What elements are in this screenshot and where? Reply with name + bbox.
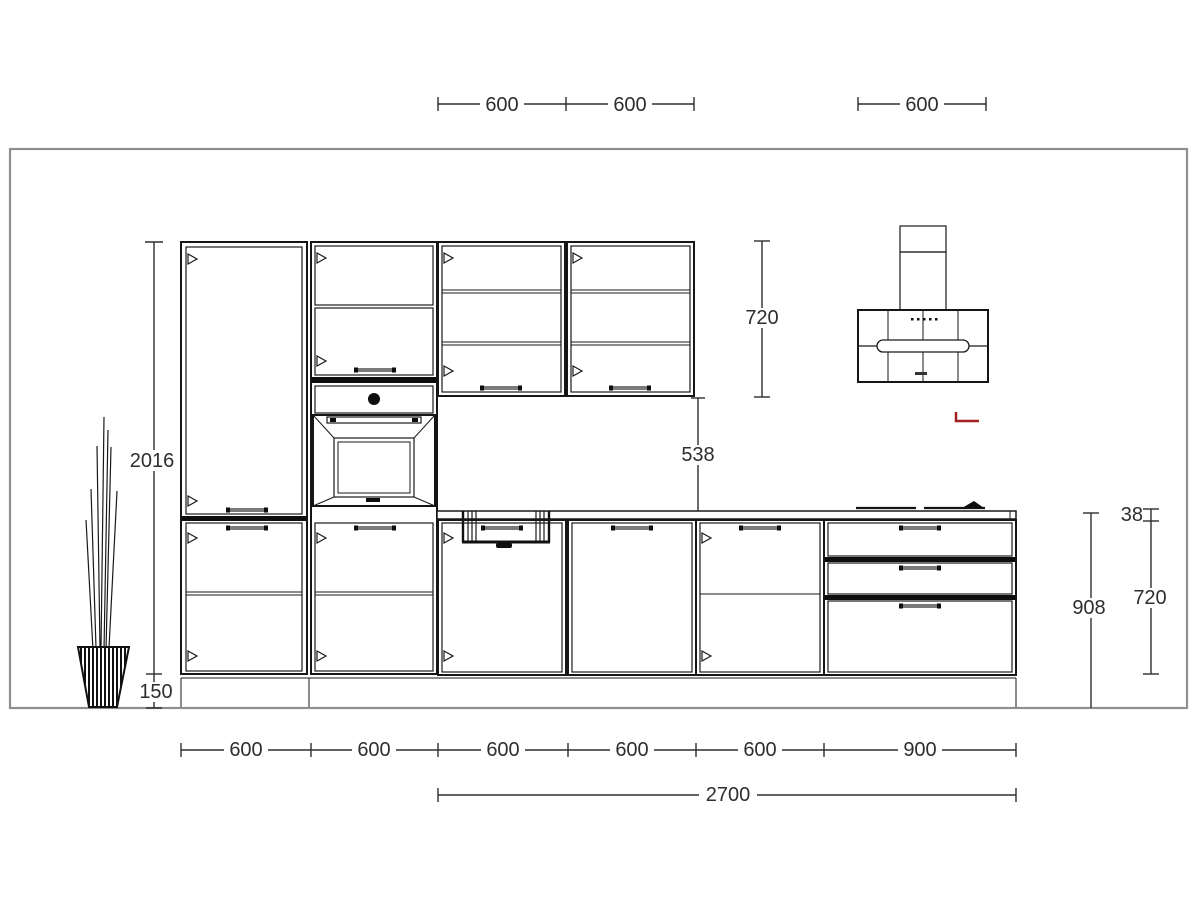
built-in-oven [313,386,435,506]
door-handle [480,386,522,391]
hinge-icon [188,533,197,543]
dim-label: 600 [357,739,390,761]
dim-label: 600 [229,739,262,761]
wall-cabinet-left [438,242,565,396]
dim-top-hood: 600 [858,94,986,116]
door-handle [739,526,781,531]
sink-drain [496,543,512,548]
dim-label: 150 [139,681,172,703]
hinge-icon [444,253,453,263]
dim-label: 720 [1133,587,1166,609]
plinth [181,678,1016,707]
door-handle [611,526,653,531]
dim-top-wall-cabinets: 600 600 [438,94,694,116]
dim-label: 600 [613,94,646,116]
range-hood [858,226,988,382]
kitchen-elevation-drawing: 600 600 600 2016 150 720 538 [0,0,1200,900]
dim-total-width: 2700 [438,784,1016,806]
door-handle [354,368,396,373]
hinge-icon [317,533,326,543]
hinge-icon [317,651,326,661]
hinge-icon [317,356,326,366]
plant-vase [78,647,129,707]
dim-label: 600 [743,739,776,761]
dim-label: 600 [486,739,519,761]
cooktop-control [962,501,984,508]
hinge-icon [444,533,453,543]
dim-label: 900 [903,739,936,761]
hinge-icon [702,651,711,661]
oven-housing-cabinet [311,242,437,674]
dim-label: 2700 [706,784,751,806]
dim-label: 538 [681,444,714,466]
dim-splashback: 538 [674,398,722,511]
dim-label: 2016 [130,450,175,472]
plant [78,417,129,707]
tall-cabinet [181,242,307,674]
drawer-handle [899,526,941,531]
door-handle [226,526,268,531]
dim-right-base: 38 720 [1121,504,1173,674]
hinge-icon [573,253,582,263]
hood-logo [915,372,927,375]
dim-label: 600 [905,94,938,116]
hinge-icon [444,651,453,661]
hinge-icon [188,254,197,264]
door-handle [609,386,651,391]
hinge-icon [444,366,453,376]
appliance-front-cabinet [568,520,696,675]
dim-wall-cabinet-height: 720 [738,241,786,397]
dim-label: 720 [745,307,778,329]
dim-label: 600 [485,94,518,116]
oven-knob [368,393,380,405]
door-handle [354,526,396,531]
hinge-icon [702,533,711,543]
dim-label: 908 [1072,597,1105,619]
drawer-handle [899,604,941,609]
hinge-icon [188,651,197,661]
kitchen-elevation-page: 600 600 600 2016 150 720 538 [0,0,1200,900]
dim-label: 600 [615,739,648,761]
dim-bottom-widths: 600 600 600 600 600 900 [181,739,1016,761]
drawer-handle [899,566,941,571]
hinge-icon [188,496,197,506]
hood-light-bar [877,340,969,352]
oven-handle [327,417,421,423]
door-handle [226,508,268,513]
hood-chimney [900,226,946,252]
hinge-icon [317,253,326,263]
dim-label: 38 [1121,504,1143,526]
cooktop [856,501,985,508]
hinge-icon [573,366,582,376]
dim-worktop-height: 908 [1063,513,1115,708]
red-annotation-mark [956,412,979,421]
base-door-cabinet [696,520,824,675]
door-handle [481,526,523,531]
countertop [437,511,1016,519]
drawer-base-cabinet [824,520,1016,675]
dim-left-height: 2016 150 [125,242,179,708]
wall-cabinet-right [567,242,694,396]
drawer [828,601,1012,672]
